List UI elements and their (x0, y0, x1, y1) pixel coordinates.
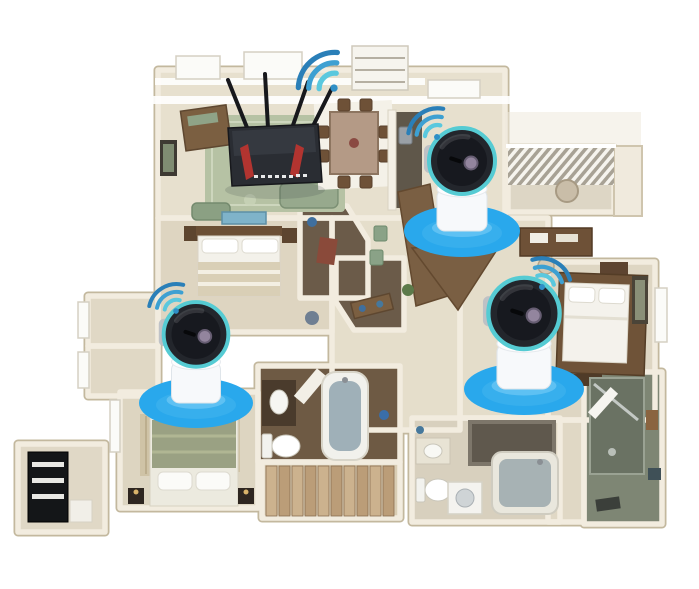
sideboard (180, 105, 231, 151)
tile-decor (648, 468, 661, 480)
lamp (244, 490, 249, 495)
pillow (202, 239, 238, 253)
plant (402, 284, 414, 296)
blue-decor (379, 410, 389, 420)
toilet (262, 434, 300, 458)
bar-chair (374, 226, 387, 241)
closet-item (305, 311, 319, 325)
centerpiece (349, 138, 359, 148)
pillow (158, 472, 192, 490)
faucet (342, 377, 348, 383)
window (78, 302, 89, 338)
pillow (242, 239, 278, 253)
balcony-railing (508, 148, 614, 185)
vase (307, 217, 317, 227)
window (244, 52, 302, 79)
window (655, 288, 667, 342)
door-mat (70, 500, 92, 522)
closet-decor (316, 237, 337, 265)
floorplan-illustration (0, 0, 699, 589)
bed (150, 418, 238, 506)
papers (556, 234, 578, 242)
balcony-table (556, 180, 578, 202)
pillow (569, 287, 596, 303)
upper-railing (352, 46, 408, 90)
bed (196, 226, 282, 296)
headboard-art (222, 212, 266, 224)
wall-art (632, 276, 648, 324)
shower-tub (492, 452, 558, 514)
pillow (599, 288, 626, 304)
window (110, 400, 120, 452)
washer (448, 482, 482, 514)
bar-chair (370, 250, 383, 265)
balcony-upper-wall (505, 112, 641, 148)
shower-glass (590, 378, 644, 474)
lamp (134, 490, 139, 495)
wood-shelf (646, 410, 658, 430)
shower-head (537, 459, 543, 465)
sink (270, 390, 288, 414)
fixture (608, 448, 616, 456)
toilet (416, 478, 451, 502)
pillow (196, 472, 230, 490)
floorplan-svg (0, 0, 699, 589)
nightstand (282, 228, 297, 243)
dining-area (314, 99, 396, 190)
blue-decor (416, 426, 424, 434)
sink (424, 444, 442, 458)
wall-art (160, 140, 177, 176)
papers (530, 233, 548, 243)
window (428, 80, 480, 98)
balcony-side-wall (614, 146, 642, 216)
bathtub (322, 372, 368, 460)
window (78, 352, 89, 388)
window (176, 56, 220, 79)
